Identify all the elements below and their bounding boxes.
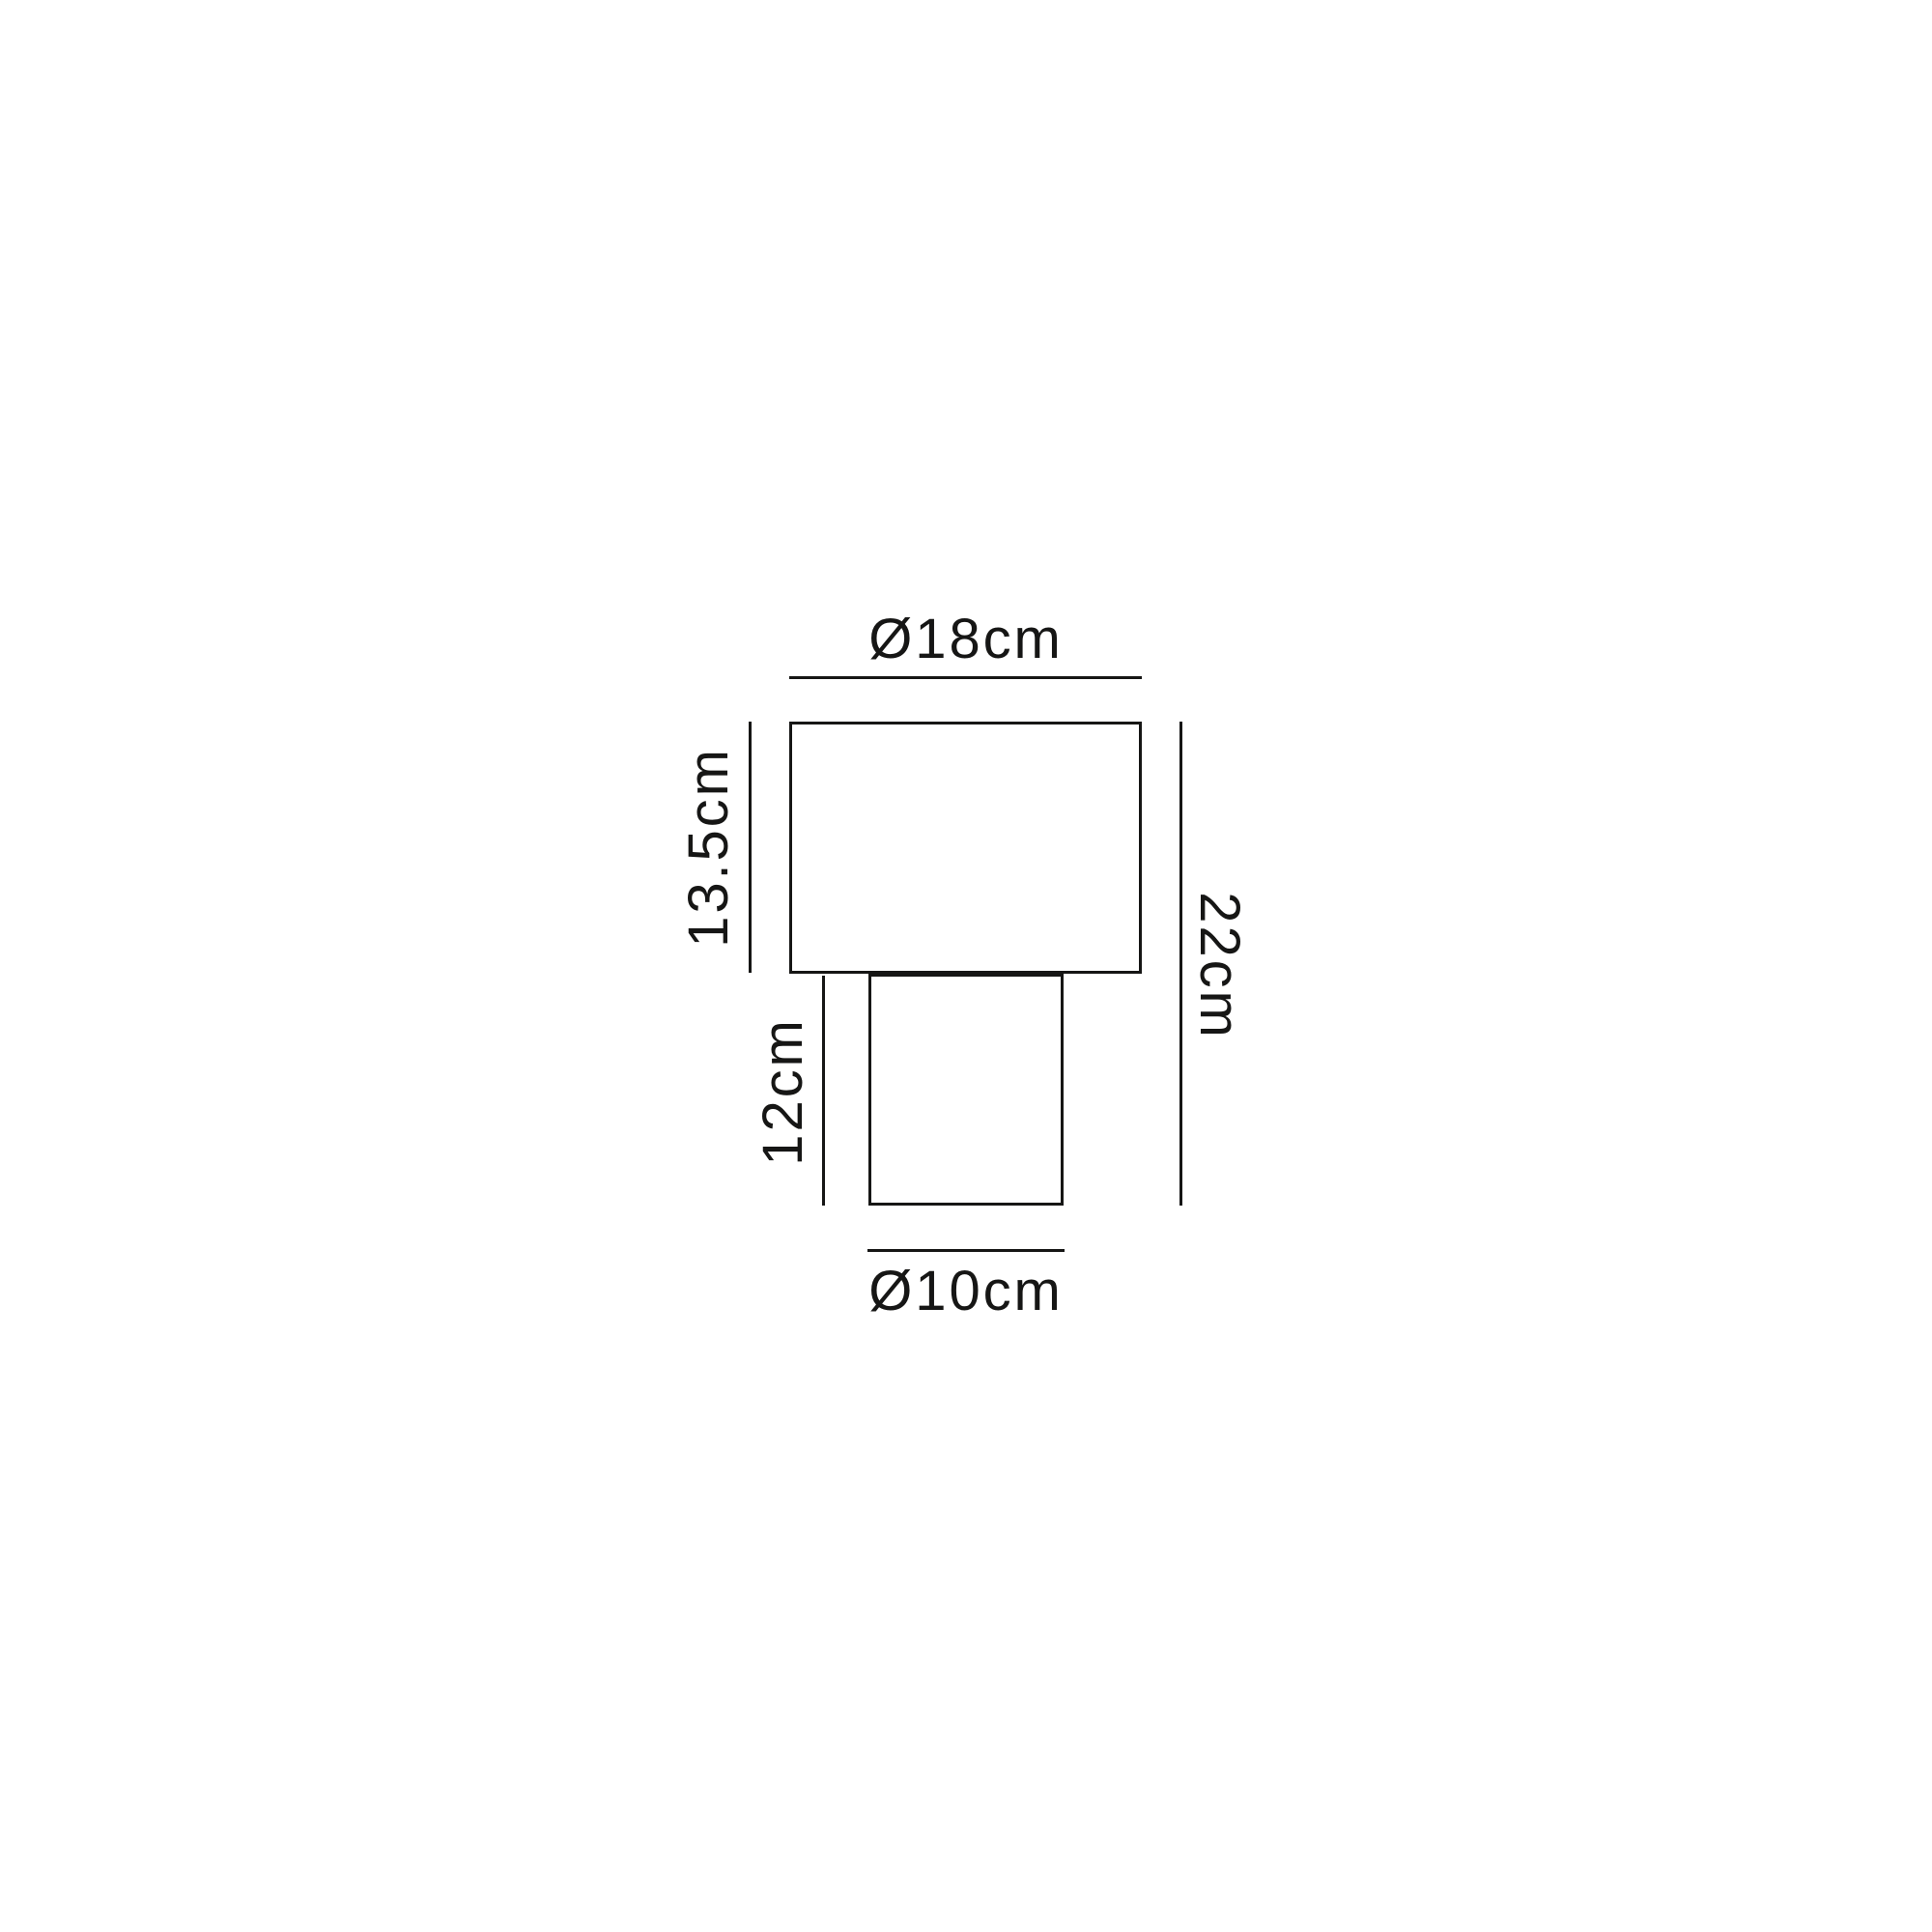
base-diameter-dimension-line — [867, 1249, 1065, 1252]
total-height-dimension-line — [1179, 722, 1182, 1206]
shade-diameter-label: Ø18cm — [868, 611, 1063, 668]
base-diameter-label: Ø10cm — [868, 1264, 1063, 1320]
lamp-shade-outline — [789, 722, 1142, 974]
shade-height-dimension-line — [749, 722, 752, 973]
total-height-label: 22cm — [1191, 892, 1247, 1039]
shade-height-label: 13.5cm — [681, 747, 737, 948]
base-height-label: 12cm — [755, 1017, 811, 1165]
shade-diameter-dimension-line — [789, 676, 1142, 679]
lamp-base-outline — [868, 974, 1064, 1206]
base-height-dimension-line — [822, 976, 825, 1206]
dimension-diagram: Ø18cm 13.5cm 12cm 22cm Ø10cm — [0, 0, 1932, 1932]
